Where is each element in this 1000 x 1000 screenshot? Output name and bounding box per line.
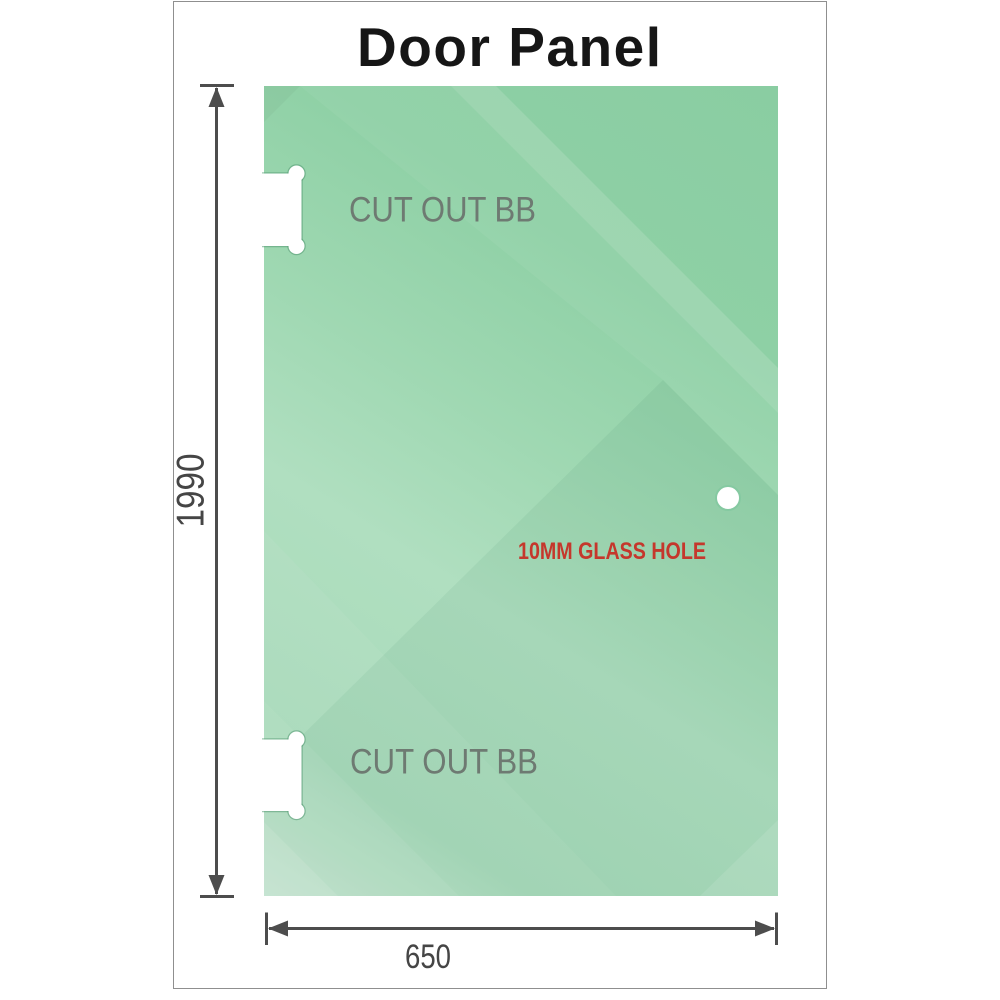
svg-text:Door Panel: Door Panel xyxy=(357,16,661,78)
svg-text:CUT OUT BB: CUT OUT BB xyxy=(350,743,538,782)
svg-text:650: 650 xyxy=(405,938,451,976)
svg-text:CUT OUT BB: CUT OUT BB xyxy=(349,191,536,230)
svg-text:10MM GLASS HOLE: 10MM GLASS HOLE xyxy=(518,538,706,565)
svg-text:1990: 1990 xyxy=(169,454,212,528)
